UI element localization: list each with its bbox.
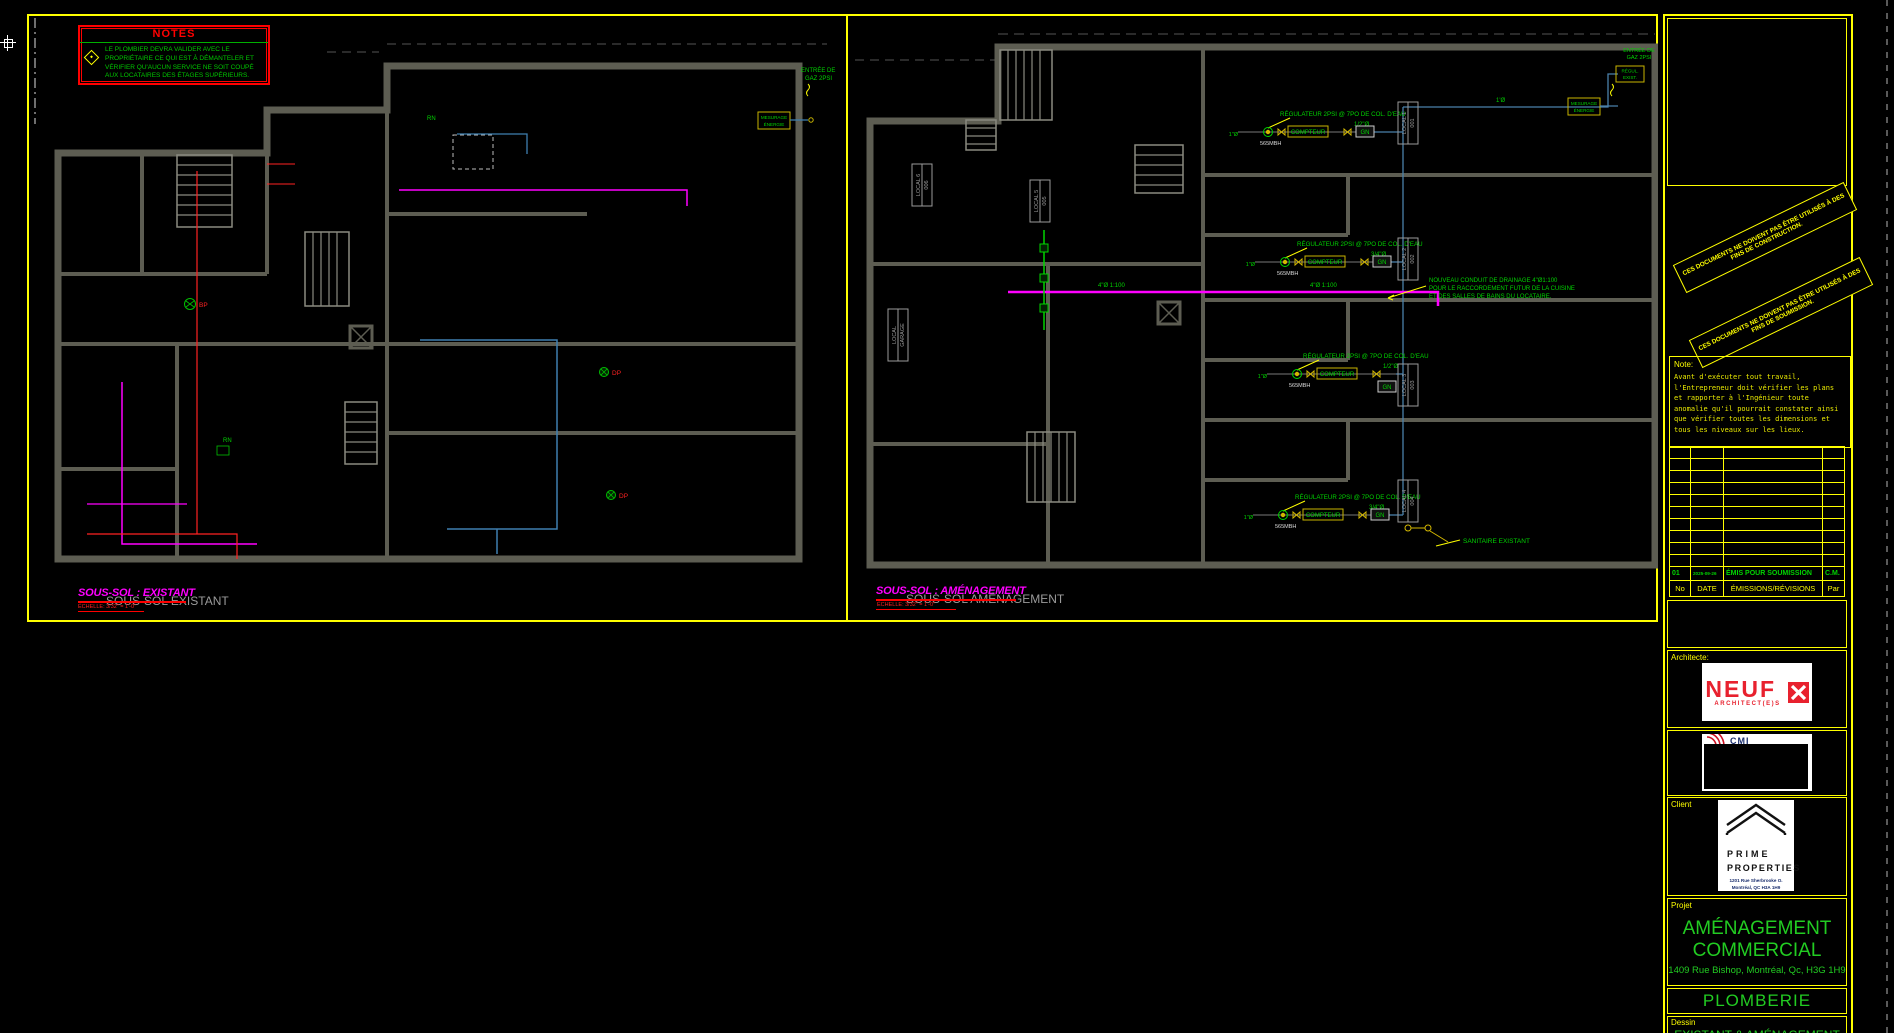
svg-text:GARAGE: GARAGE — [900, 323, 906, 347]
svg-text:LOCAL 4: LOCAL 4 — [1402, 490, 1408, 512]
svg-text:4"Ø 1:100: 4"Ø 1:100 — [1310, 283, 1337, 289]
svg-text:LOCAL 3: LOCAL 3 — [1402, 374, 1408, 396]
client-logo-addr2: Montréal, QC H3A 1H9 — [1718, 884, 1794, 891]
svg-text:ENTRÉE DE: ENTRÉE DE — [801, 67, 835, 74]
mesurage-energie-box: MESURAGE ÉNERGIE — [758, 112, 813, 129]
svg-text:COMPTEUR: COMPTEUR — [1320, 372, 1355, 378]
revision-header-desc: ÉMISSIONS/RÉVISIONS — [1724, 581, 1823, 596]
svg-text:003: 003 — [1410, 380, 1416, 389]
engineer-logo: CMI — [1702, 734, 1812, 791]
svg-text:EXIST.: EXIST. — [1623, 75, 1637, 80]
crosshair-cursor — [0, 35, 20, 55]
revision-row-empty — [1670, 459, 1844, 471]
svg-text:ÉNERGIE: ÉNERGIE — [1574, 107, 1595, 113]
svg-text:1"Ø: 1"Ø — [1229, 132, 1239, 138]
notes-text: LE PLOMBIER DEVRA VALIDER AVEC LE PROPRI… — [105, 46, 264, 81]
svg-text:GN: GN — [1361, 130, 1370, 136]
client-logo-line1: PRIME — [1718, 848, 1794, 862]
svg-text:LOCAL: LOCAL — [892, 326, 898, 344]
revision-row: 01 2025-09-26 ÉMIS POUR SOUMISSION C.M. — [1670, 567, 1844, 581]
svg-text:565MBH: 565MBH — [1277, 271, 1298, 277]
client-logo-addr1: 1201 Rue Sherbrooke O. — [1718, 877, 1794, 884]
titleblock-note: Note: Avant d'exécuter tout travail, l'E… — [1669, 356, 1851, 448]
svg-text:GAZ 2PSI: GAZ 2PSI — [805, 76, 832, 82]
building-outline — [58, 66, 799, 559]
plan-amenagement-scale: ÉCHELLE: 3/32" = 1'-0" — [877, 602, 935, 608]
svg-text:005: 005 — [1042, 196, 1048, 205]
entree-gaz-annotation: ENTRÉE DE GAZ 2PSI RÉGUL. EXIST. — [1611, 47, 1656, 96]
revision-row-empty — [1670, 543, 1844, 555]
plan-existant-viewport[interactable]: DP DP BP RN RN ENTRÉE DE GAZ 2PSI MESURA… — [27, 14, 846, 618]
svg-text:RÉGULATEUR 2PSI @ 7PO DE COL.: RÉGULATEUR 2PSI @ 7PO DE COL. D'EAU — [1297, 241, 1423, 248]
svg-text:MESURAGE: MESURAGE — [761, 115, 787, 120]
dessin-label: Dessin — [1668, 1017, 1846, 1028]
sanitaire-annotation: SANITAIRE EXISTANT — [1405, 525, 1530, 546]
svg-text:565MBH: 565MBH — [1275, 524, 1296, 530]
revision-header-no: No — [1670, 581, 1691, 596]
svg-text:ET DES SALLES DE BAINS DU LOCA: ET DES SALLES DE BAINS DU LOCATAIRE. — [1429, 294, 1552, 300]
regulator-group: RÉGULATEUR 2PSI @ 7PO DE COL. D'EAU 1"Ø … — [1246, 241, 1423, 277]
svg-text:1/2"Ø: 1/2"Ø — [1383, 364, 1398, 370]
svg-text:RÉGULATEUR 2PSI @ 7PO DE COL.: RÉGULATEUR 2PSI @ 7PO DE COL. D'EAU — [1303, 353, 1429, 360]
project-title-line2: COMMERCIAL — [1668, 940, 1846, 962]
revision-header-par: Par — [1823, 581, 1844, 596]
svg-text:COMPTEUR: COMPTEUR — [1306, 513, 1341, 519]
note-diamond-icon — [84, 50, 100, 66]
svg-text:1"Ø: 1"Ø — [1246, 262, 1256, 268]
svg-text:565MBH: 565MBH — [1289, 383, 1310, 389]
note-text: Avant d'exécuter tout travail, l'Entrepr… — [1674, 372, 1846, 435]
building-outline — [870, 47, 1655, 565]
svg-text:COMPTEUR: COMPTEUR — [1308, 260, 1343, 266]
svg-text:RÉGULATEUR 2PSI @ 7PO DE COL.: RÉGULATEUR 2PSI @ 7PO DE COL. D'EAU — [1280, 111, 1406, 118]
revision-row-empty — [1670, 495, 1844, 507]
regulator-group: RÉGULATEUR 2PSI @ 7PO DE COL. D'EAU 1"Ø … — [1229, 111, 1406, 147]
revision-row-empty — [1670, 531, 1844, 543]
svg-text:4"Ø 1:100: 4"Ø 1:100 — [1098, 283, 1125, 289]
neuf-logo-icon — [1788, 682, 1809, 703]
client-logo: PRIME PROPERTIES 1201 Rue Sherbrooke O. … — [1718, 800, 1794, 891]
revision-row-empty — [1670, 483, 1844, 495]
svg-text:LOCAL 5: LOCAL 5 — [1034, 190, 1040, 212]
revision-header-date: DATE — [1691, 581, 1724, 596]
projet-section: Projet AMÉNAGEMENT COMMERCIAL 1409 Rue B… — [1667, 898, 1847, 986]
svg-text:LOCAL 1: LOCAL 1 — [1402, 112, 1408, 134]
plan-amenagement-viewport[interactable]: 1'Ø 4"Ø 1:100 4"Ø 1:100 NOUVEAU CONDUIT … — [848, 14, 1658, 618]
notes-box: NOTES LE PLOMBIER DEVRA VALIDER AVEC LE … — [78, 25, 270, 85]
bp-label: BP — [199, 302, 208, 309]
revision-desc: ÉMIS POUR SOUMISSION — [1724, 567, 1823, 580]
svg-text:001: 001 — [1410, 118, 1416, 127]
svg-text:COMPTEUR: COMPTEUR — [1291, 130, 1326, 136]
svg-text:POUR LE RACCORDEMENT FUTUR DE: POUR LE RACCORDEMENT FUTUR DE LA CUISINE — [1429, 286, 1575, 292]
svg-text:SANITAIRE EXISTANT: SANITAIRE EXISTANT — [1463, 538, 1530, 545]
revision-row-empty — [1670, 447, 1844, 459]
svg-text:1"Ø: 1"Ø — [1244, 515, 1254, 521]
projet-label: Projet — [1668, 899, 1846, 912]
svg-text:GAZ 2PSI: GAZ 2PSI — [1627, 55, 1652, 61]
entree-gaz-annotation: ENTRÉE DE GAZ 2PSI — [801, 67, 835, 96]
project-title-line1: AMÉNAGEMENT — [1668, 918, 1846, 940]
cad-sheet: DP DP BP RN RN ENTRÉE DE GAZ 2PSI MESURA… — [0, 0, 1894, 1033]
plan-existant-scale: ÉCHELLE: 3/32" = 1'-0" — [78, 604, 136, 610]
svg-text:1"Ø: 1"Ø — [1258, 374, 1268, 380]
rn-label: RN — [223, 438, 232, 444]
interior-walls — [58, 110, 799, 559]
svg-text:LOCAL 6: LOCAL 6 — [916, 174, 922, 196]
right-edge-dashes — [1886, 0, 1888, 1033]
revision-no: 01 — [1670, 567, 1691, 580]
neuf-logo-sub: ARCHITECT(E)S — [1714, 701, 1780, 707]
svg-text:004: 004 — [1410, 496, 1416, 505]
svg-text:GN: GN — [1376, 513, 1385, 519]
pipe-dia-label: 1'Ø — [1496, 98, 1505, 104]
local-label-texts: LOCAL 1 001 LOCAL 2 002 LOCAL 3 003 LOCA… — [892, 112, 1416, 512]
svg-text:RÉGUL.: RÉGUL. — [1621, 68, 1638, 74]
svg-text:LOCAL 2: LOCAL 2 — [1402, 248, 1408, 270]
note-label: Note: — [1674, 360, 1846, 369]
client-logo-line2: PROPERTIES — [1718, 862, 1794, 876]
floor-drain-symbol — [185, 299, 616, 500]
regulator-group: RÉGULATEUR 2PSI @ 7PO DE COL. D'EAU 1"Ø … — [1244, 494, 1421, 530]
rn-label: RN — [427, 116, 436, 122]
elevator-symbol — [1158, 302, 1180, 324]
revision-table: 01 2025-09-26 ÉMIS POUR SOUMISSION C.M. … — [1669, 446, 1845, 597]
revision-date: 2025-09-26 — [1691, 567, 1724, 580]
dashed-demolition-box — [453, 135, 493, 169]
svg-text:002: 002 — [1410, 254, 1416, 263]
revision-row-empty — [1670, 555, 1844, 567]
svg-text:GN: GN — [1383, 385, 1392, 391]
drainage-note: NOUVEAU CONDUIT DE DRAINAGE 4"Ø1:100 POU… — [1388, 278, 1575, 300]
title-underline — [876, 609, 956, 610]
dp-label: DP — [612, 370, 621, 377]
interior-walls — [870, 47, 1655, 565]
svg-text:MESURAGE: MESURAGE — [1571, 101, 1597, 106]
project-address: 1409 Rue Bishop, Montréal, Qc, H3G 1H9 — [1668, 965, 1846, 976]
discipline-title: PLOMBERIE — [1703, 991, 1811, 1011]
dp-label: DP — [619, 493, 628, 500]
revision-row-empty — [1670, 519, 1844, 531]
discipline-section: PLOMBERIE — [1667, 988, 1847, 1014]
title-underline — [78, 611, 144, 612]
stairs — [177, 155, 377, 464]
revision-par: C.M. — [1823, 567, 1844, 580]
titleblock-empty-top — [1667, 18, 1847, 186]
notes-title: NOTES — [80, 27, 268, 43]
title-underline — [876, 599, 1016, 601]
svg-text:ÉNERGIE: ÉNERGIE — [764, 121, 785, 127]
titleblock-empty-mid — [1667, 600, 1847, 648]
dessin-title: EXISTANT & AMÉNAGEMENT — [1668, 1028, 1846, 1033]
engineer-logo-redaction — [1704, 744, 1808, 789]
architect-logo: NEUF ARCHITECT(E)S — [1702, 663, 1812, 721]
svg-text:006: 006 — [924, 180, 930, 189]
svg-text:NOUVEAU CONDUIT DE DRAINAGE 4": NOUVEAU CONDUIT DE DRAINAGE 4"Ø1:100 — [1429, 278, 1558, 284]
svg-text:565MBH: 565MBH — [1260, 141, 1281, 147]
drainage-piping: 4"Ø 1:100 4"Ø 1:100 — [1008, 283, 1438, 306]
revision-header-row: No DATE ÉMISSIONS/RÉVISIONS Par — [1670, 581, 1844, 596]
revision-row-empty — [1670, 507, 1844, 519]
neuf-logo-text: NEUF — [1705, 678, 1780, 701]
dessin-section: Dessin EXISTANT & AMÉNAGEMENT — [1667, 1016, 1847, 1033]
title-underline — [78, 601, 186, 603]
client-logo-chevrons — [1721, 803, 1791, 835]
svg-text:GN: GN — [1378, 260, 1387, 266]
svg-text:ENTRÉE DE: ENTRÉE DE — [1623, 47, 1655, 54]
revision-row-empty — [1670, 471, 1844, 483]
